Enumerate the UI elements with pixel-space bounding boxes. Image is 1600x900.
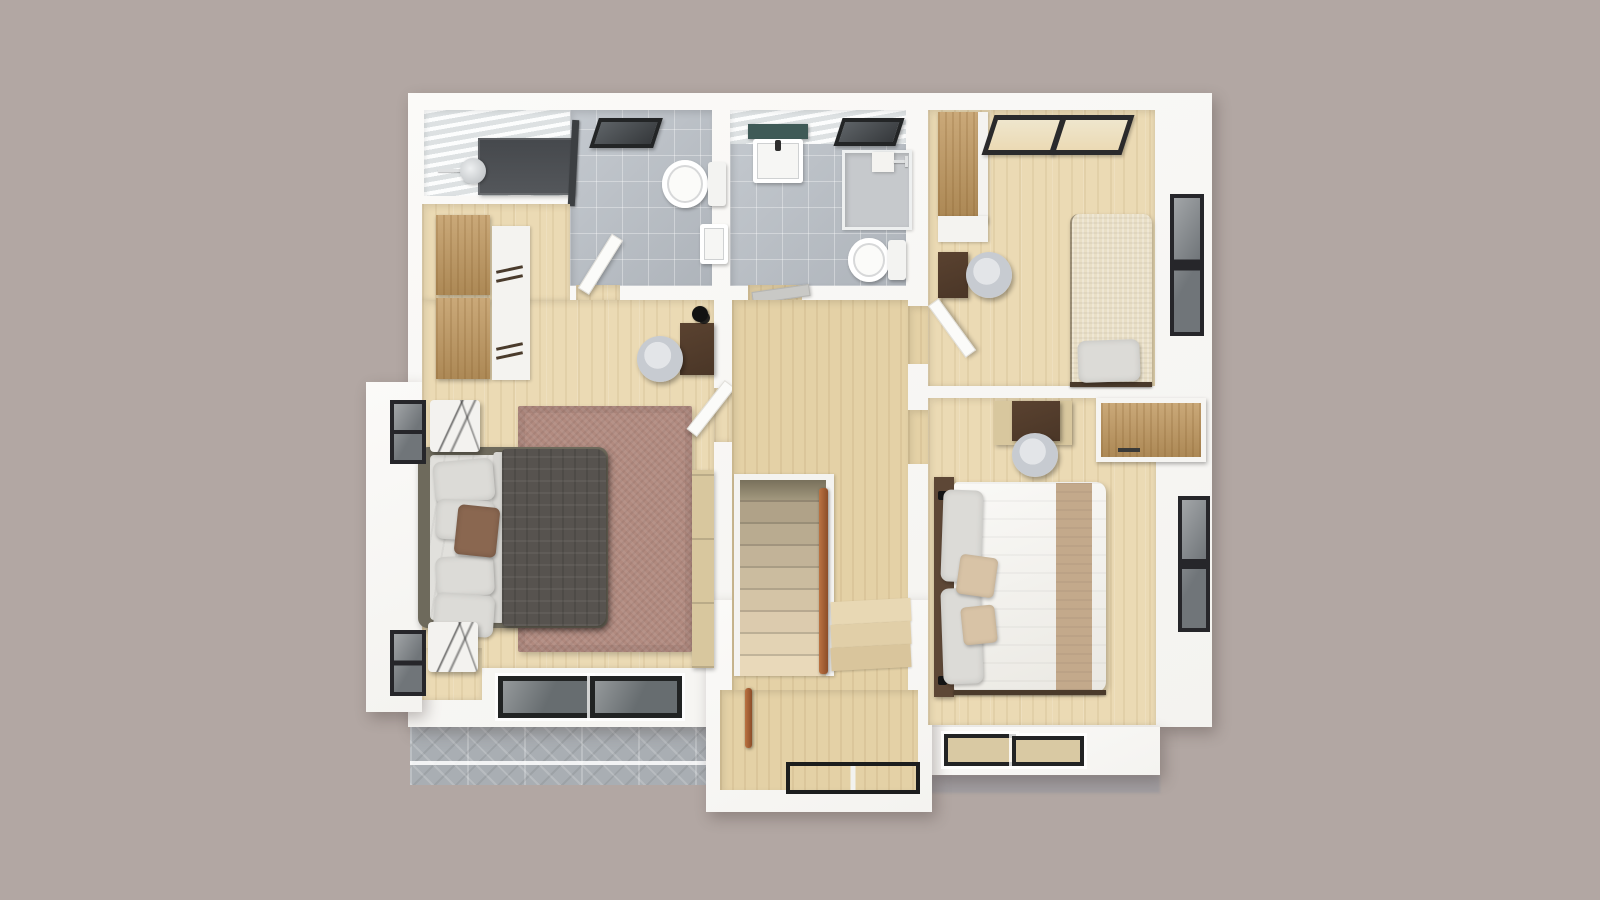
floor-plan-3d-render (0, 0, 1600, 900)
kids-wardrobe (938, 112, 978, 216)
master-window-west-north (390, 400, 426, 464)
bathroom2-sink-cabinet (753, 139, 803, 183)
master-pillow-1 (432, 457, 495, 504)
bathroom2-shower-head (905, 156, 908, 167)
master-window-west-south (390, 630, 426, 696)
kids-wardrobe-side (978, 112, 988, 224)
bathroom2-skylight (833, 118, 904, 146)
stair-tread (740, 610, 826, 634)
stair-tread (740, 588, 826, 612)
toilet-tank (888, 240, 906, 280)
master-desk (680, 323, 714, 375)
stair-tread (740, 632, 826, 656)
roof-gutter-line (410, 761, 712, 765)
kids-bed-pillow (1077, 339, 1140, 383)
stair-tread (740, 500, 826, 524)
master-nightstand-north (430, 400, 480, 452)
bedroom2-desk-chair (1012, 433, 1058, 477)
master-low-bay-window-1 (498, 676, 592, 718)
stair-tread (740, 522, 826, 546)
stair-tread (740, 544, 826, 568)
bathroom2-shower-panel (872, 152, 894, 172)
faucet (775, 140, 781, 151)
stair-bay-window (786, 762, 920, 794)
bedroom2-low-window-south-1 (944, 734, 1016, 766)
kids-clerestory-window-2 (1050, 115, 1135, 155)
master-wardrobe-door-1 (436, 215, 490, 295)
stair-handrail (819, 488, 828, 674)
kids-wardrobe-base (938, 216, 988, 242)
bedroom2-built-in-wardrobe (1096, 398, 1206, 462)
bathroom1-shower-head (460, 158, 486, 184)
kids-door-threshold (908, 306, 928, 364)
bedroom2-pillow-tan-2 (960, 604, 998, 645)
bathroom2-toilet (848, 238, 906, 282)
toilet-bowl (662, 160, 708, 208)
master-desk-lamp (692, 306, 708, 322)
bathroom1-toilet (662, 160, 726, 208)
kids-desk (938, 252, 968, 298)
master-nightstand-south (428, 622, 478, 672)
bedroom2-door-threshold (908, 410, 928, 464)
bathroom2-vanity-counter (748, 124, 808, 139)
master-desk-chair (637, 336, 683, 382)
toilet-bowl (848, 238, 890, 282)
master-wardrobe-door-2 (436, 298, 490, 379)
bathroom1-skylight (589, 118, 663, 148)
master-low-bay-window-2 (590, 676, 682, 718)
kids-bed-foot-frame (1070, 382, 1152, 387)
bedroom2-tan-runner (1056, 483, 1092, 691)
wardrobe-handle (1118, 448, 1140, 452)
bathroom1-wall-sink (700, 224, 728, 264)
toilet-tank (708, 162, 726, 206)
winder-step-3 (830, 644, 911, 671)
bathroom1-shower-tray (478, 138, 574, 195)
stair-tread (740, 566, 826, 590)
master-console-shelf (692, 470, 714, 668)
ground-shadow-southeast (930, 775, 1160, 793)
stair-tread (740, 654, 826, 676)
bedroom2-window-east (1178, 496, 1210, 632)
bedroom2-bed-foot-frame (954, 690, 1106, 695)
master-pillow-3 (435, 555, 495, 598)
master-accent-pillow (454, 504, 501, 558)
lower-roof-tiles (410, 727, 712, 785)
kids-desk-chair (966, 252, 1012, 298)
bedroom2-pillow-tan-1 (955, 554, 998, 599)
bedroom2-low-window-south-2 (1012, 736, 1084, 766)
stairwell-top-shadow (740, 480, 826, 500)
kids-window-east (1170, 194, 1204, 336)
master-bed-dark-duvet (502, 449, 606, 626)
lower-flight-rail (745, 688, 752, 748)
